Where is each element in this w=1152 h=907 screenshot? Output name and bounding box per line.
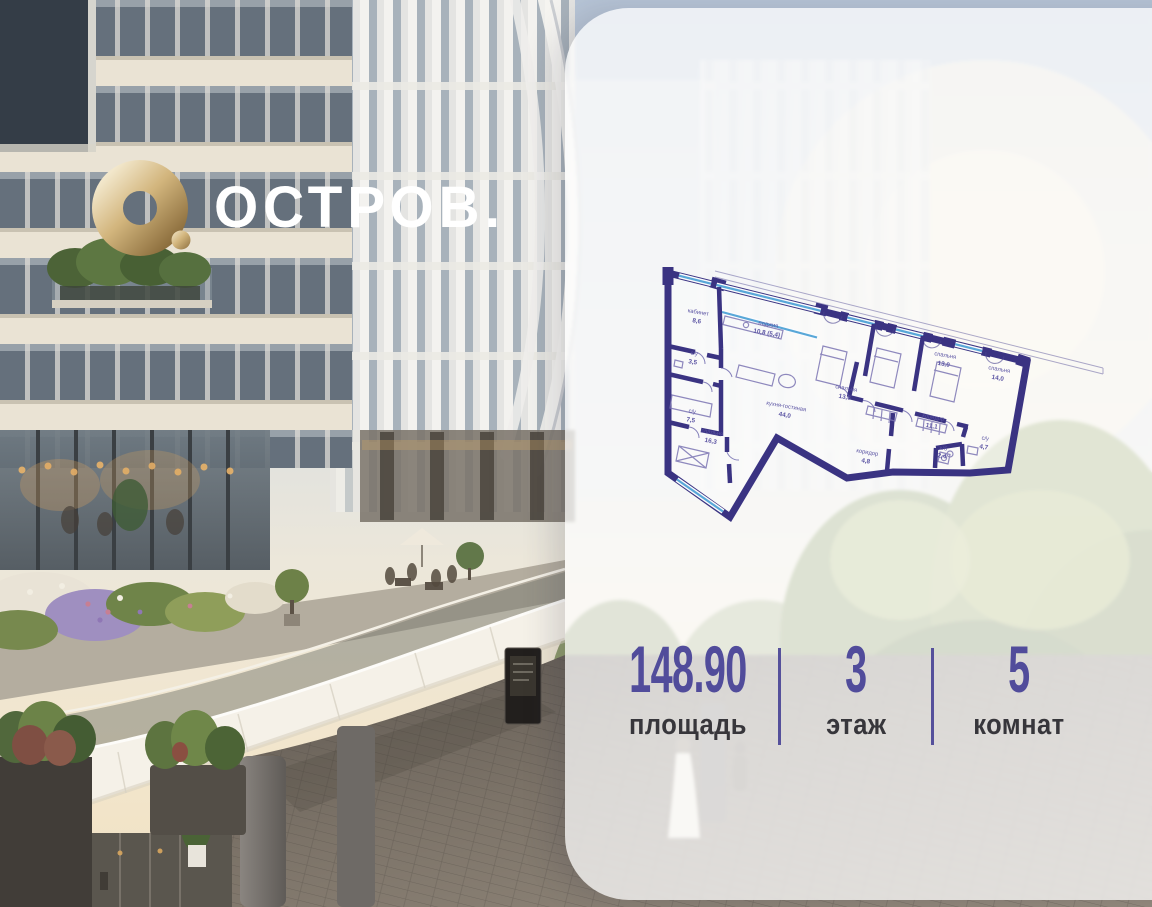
- brand-name: ОСТРОВ.: [214, 179, 505, 237]
- brand-logo: ОСТРОВ.: [92, 158, 511, 258]
- restaurant-glass: [0, 430, 270, 570]
- stat-area: 148.90 площадь: [598, 630, 778, 760]
- menu-board: [505, 648, 541, 724]
- stat-area-value: 148.90: [629, 636, 747, 702]
- stat-area-label: площадь: [629, 710, 747, 740]
- stat-rooms: 5 комнат: [934, 630, 1104, 760]
- stat-floor-value: 3: [845, 636, 866, 702]
- room-label: с/у: [690, 350, 698, 357]
- logo-ring-icon: [92, 158, 192, 258]
- stat-floor-label: этаж: [826, 710, 886, 740]
- stat-rooms-value: 5: [1008, 636, 1029, 702]
- stat-rooms-label: комнат: [973, 710, 1064, 740]
- room-label: с/у: [688, 408, 696, 415]
- tower-building: [330, 0, 580, 522]
- floor-plan: кабинет 8,6 лоджия 10,8 (5,4) с/у 3,5 с/…: [635, 250, 1152, 580]
- listing-card: ОСТРОВ.: [0, 0, 1152, 907]
- stat-floor: 3 этаж: [781, 630, 931, 760]
- apartment-stats: 148.90 площадь 3 этаж 5 комнат: [598, 630, 1104, 760]
- room-label: с/у: [981, 435, 989, 442]
